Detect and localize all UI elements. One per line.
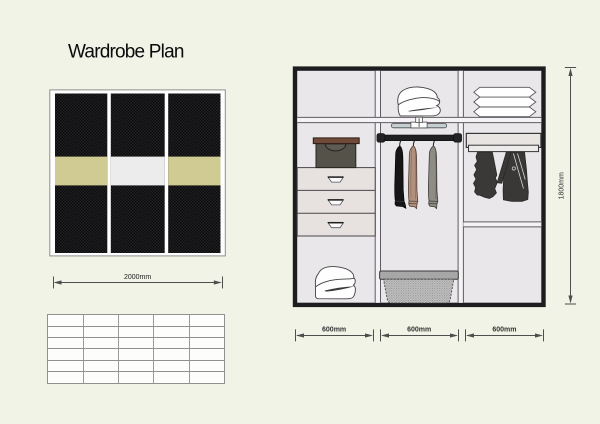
svg-text:Wardrobe Plan: Wardrobe Plan: [68, 42, 184, 63]
svg-text:1800mm: 1800mm: [558, 172, 565, 199]
svg-text:600mm: 600mm: [322, 326, 346, 333]
svg-text:2000mm: 2000mm: [124, 274, 151, 281]
svg-text:600mm: 600mm: [492, 326, 516, 333]
svg-text:600mm: 600mm: [407, 326, 431, 333]
